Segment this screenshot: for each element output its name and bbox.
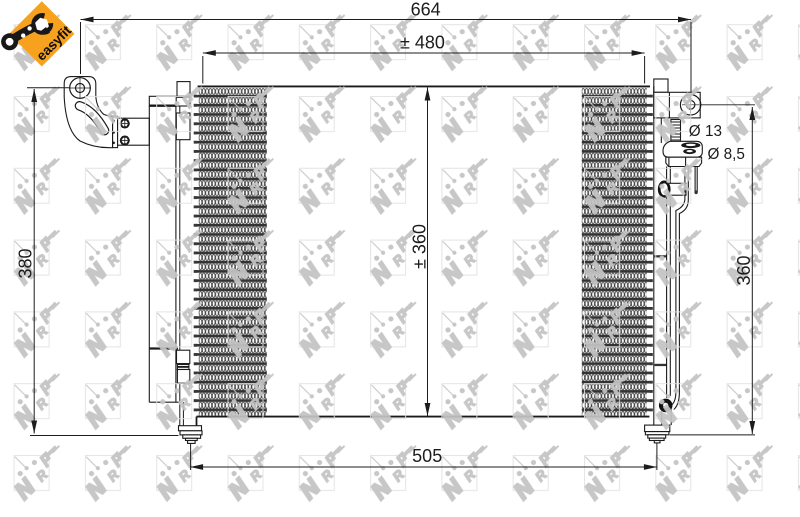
svg-text:664: 664 bbox=[411, 0, 441, 19]
svg-text:± 480: ± 480 bbox=[400, 32, 445, 52]
svg-text:505: 505 bbox=[412, 446, 442, 466]
svg-text:380: 380 bbox=[16, 248, 36, 278]
svg-text:Ø 8,5: Ø 8,5 bbox=[708, 146, 745, 163]
svg-text:360: 360 bbox=[734, 255, 754, 285]
svg-text:Ø 13: Ø 13 bbox=[689, 123, 722, 140]
svg-text:± 360: ± 360 bbox=[410, 224, 430, 269]
